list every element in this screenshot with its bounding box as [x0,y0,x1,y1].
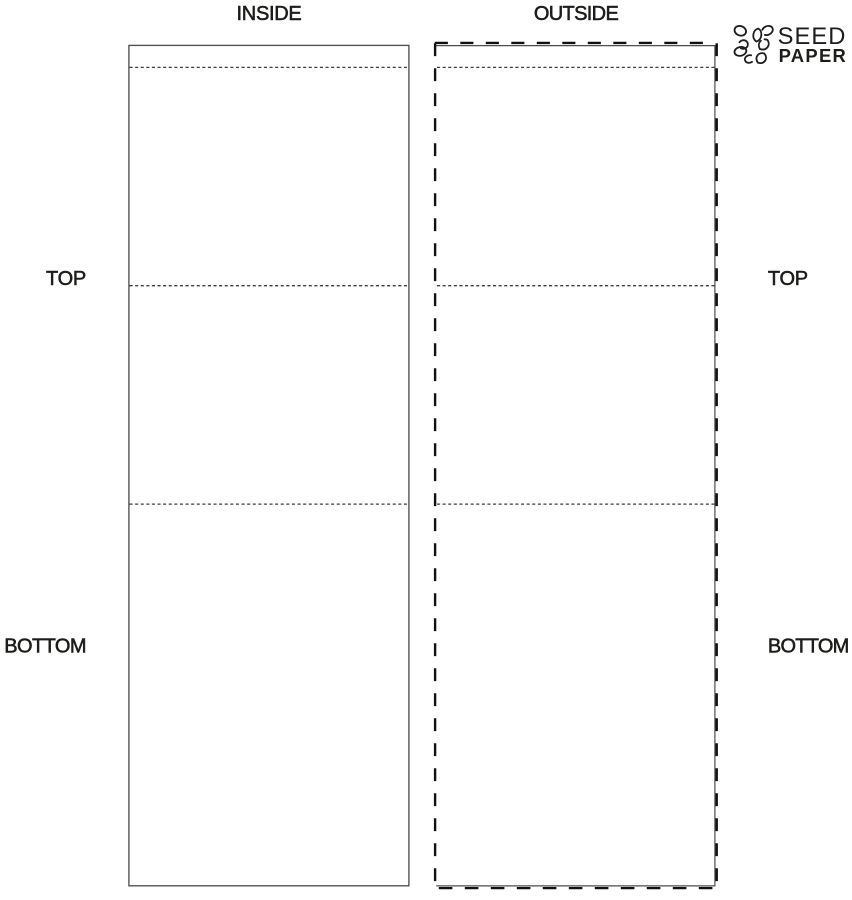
svg-text:OUTSIDE: OUTSIDE [534,3,619,25]
svg-text:BOTTOM: BOTTOM [4,636,86,658]
svg-text:BOTTOM: BOTTOM [768,636,849,658]
svg-text:TOP: TOP [46,268,86,290]
svg-text:TOP: TOP [768,268,808,290]
svg-text:INSIDE: INSIDE [237,3,302,25]
svg-text:PAPER: PAPER [779,45,848,66]
